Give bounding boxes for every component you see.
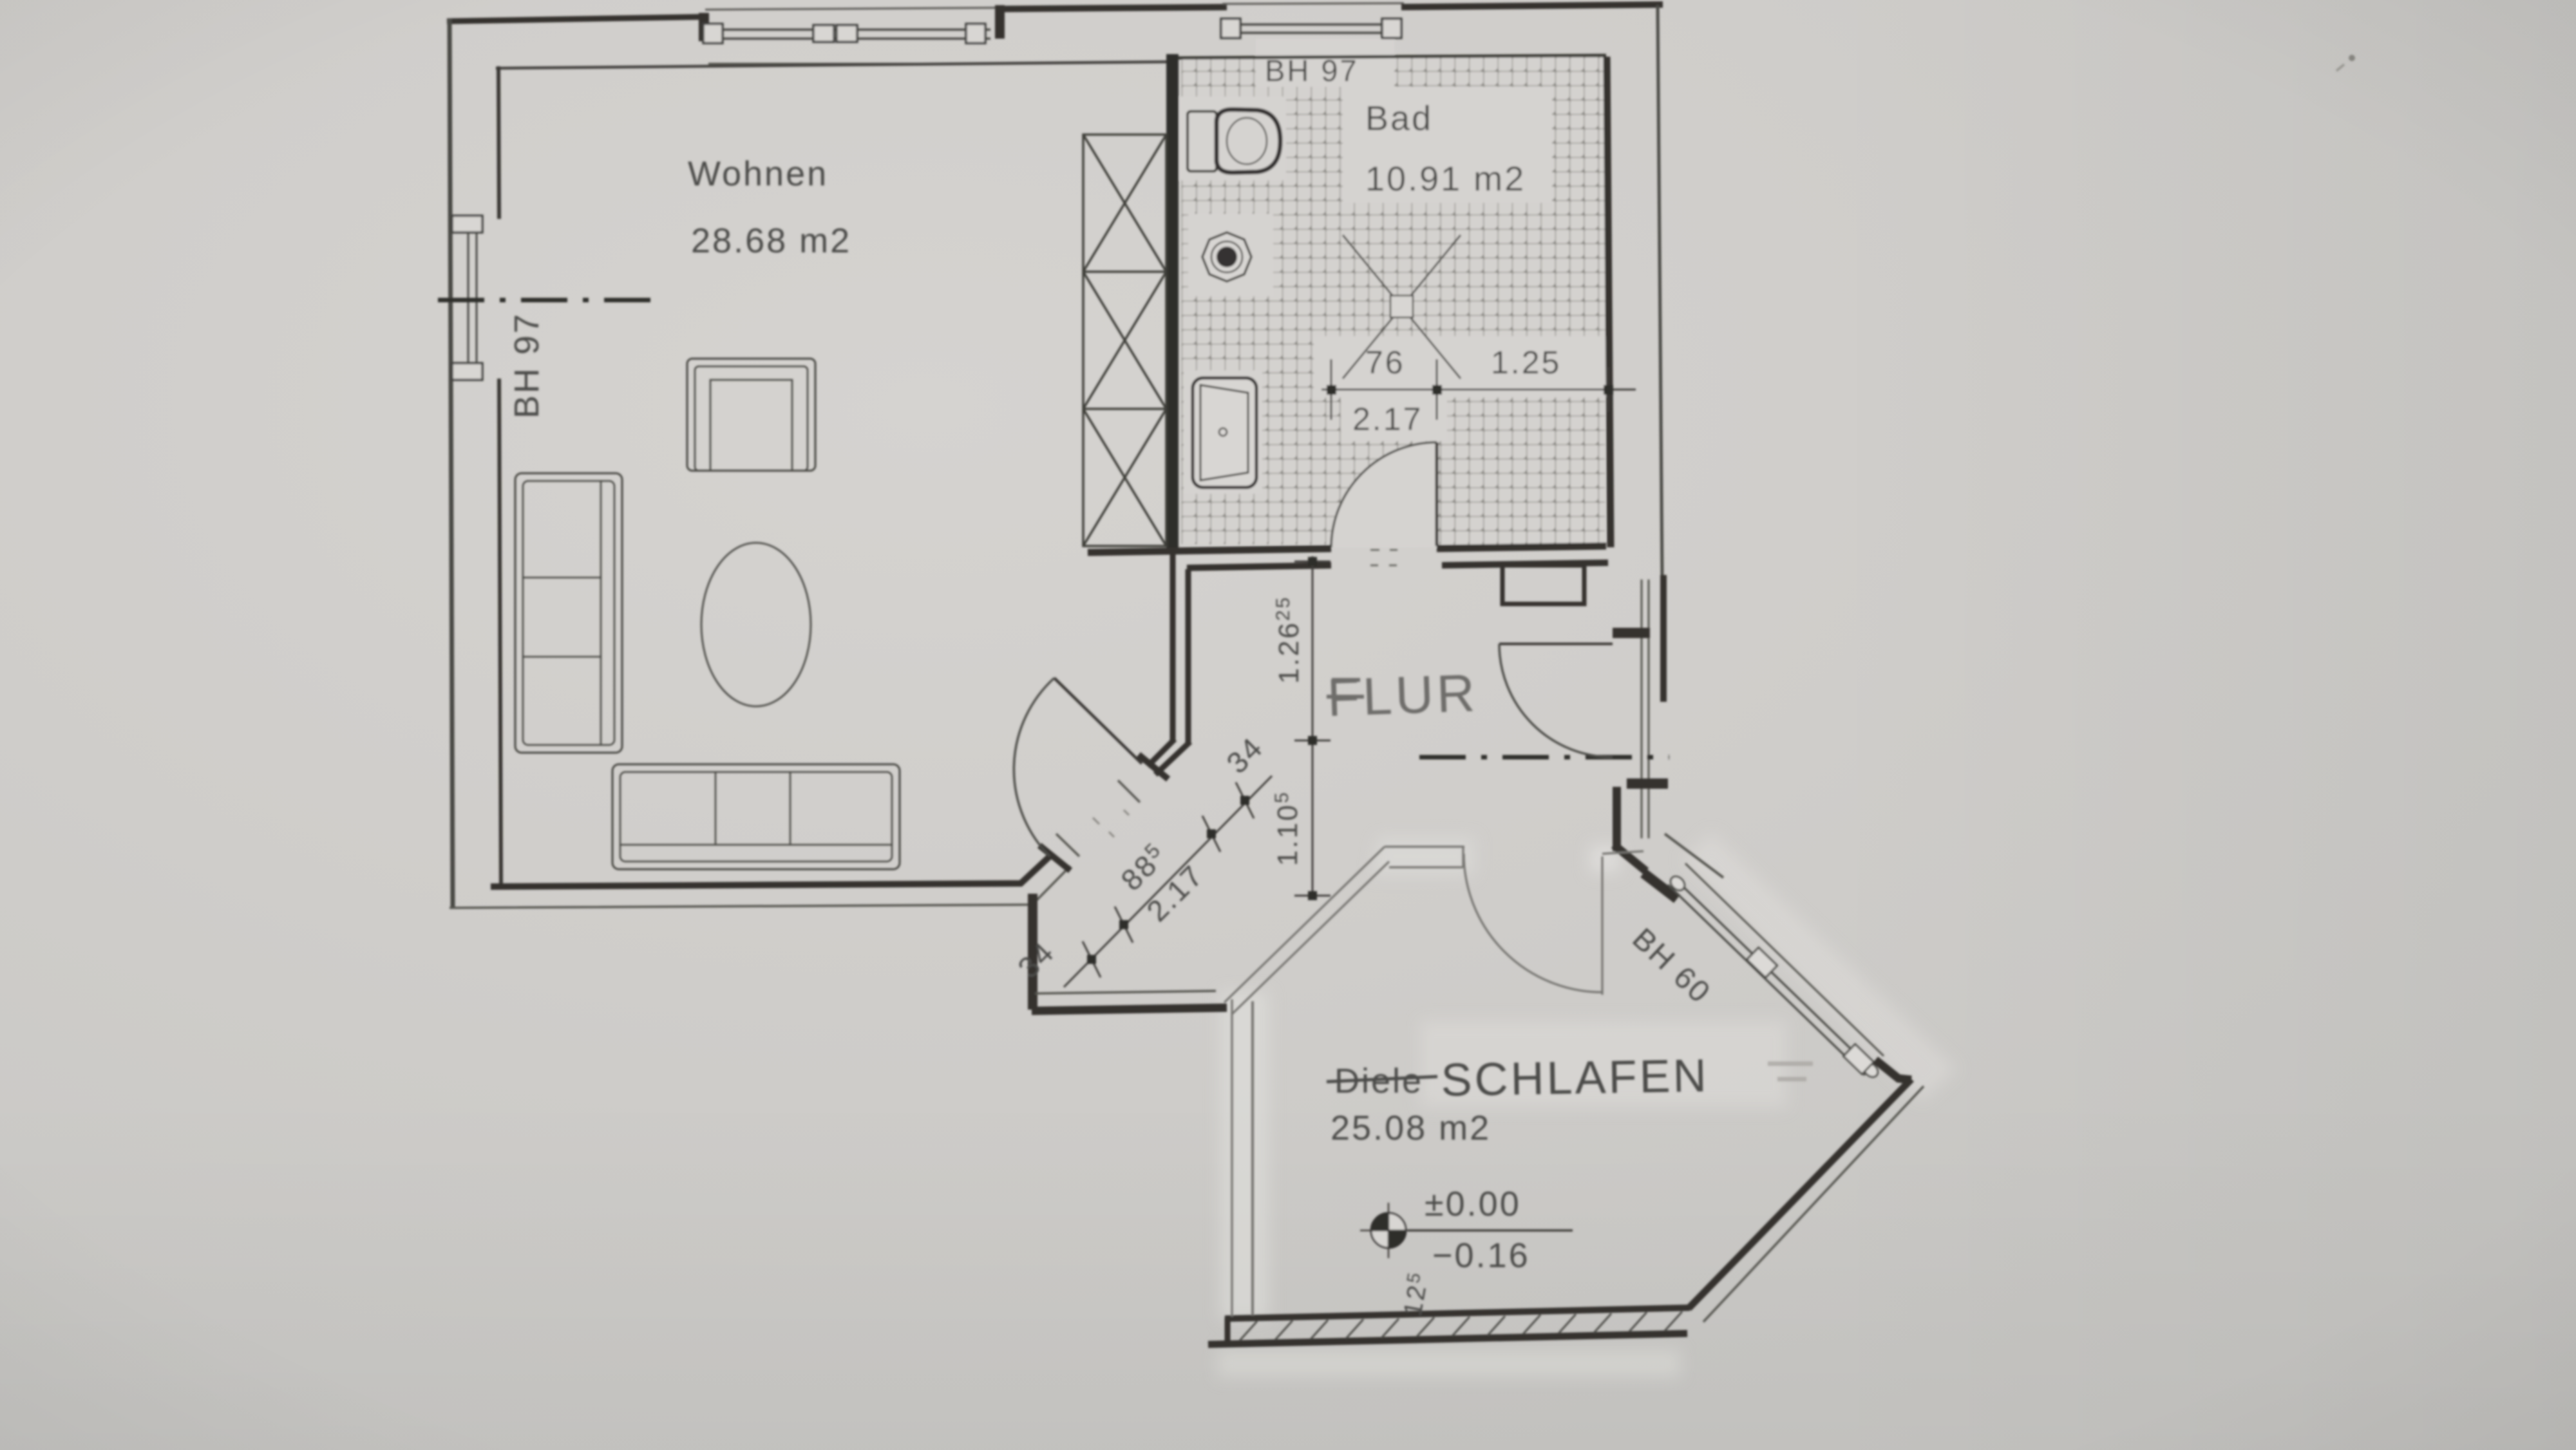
svg-text:−0.16: −0.16 <box>1432 1236 1530 1275</box>
svg-text:25.08 m2: 25.08 m2 <box>1331 1109 1491 1147</box>
svg-text:76: 76 <box>1365 344 1405 381</box>
svg-text:2.17: 2.17 <box>1352 401 1423 437</box>
svg-text:Wohnen: Wohnen <box>688 155 828 193</box>
svg-text:BH 97: BH 97 <box>507 312 546 419</box>
svg-text:Bad: Bad <box>1365 99 1433 138</box>
svg-text:BH 97: BH 97 <box>1265 53 1359 88</box>
svg-text:28.68 m2: 28.68 m2 <box>691 221 851 260</box>
svg-text:1.25: 1.25 <box>1491 344 1561 381</box>
svg-text:SCHLAFEN: SCHLAFEN <box>1441 1050 1709 1106</box>
svg-text:10.91 m2: 10.91 m2 <box>1365 160 1526 198</box>
svg-text:±0.00: ±0.00 <box>1425 1185 1521 1223</box>
